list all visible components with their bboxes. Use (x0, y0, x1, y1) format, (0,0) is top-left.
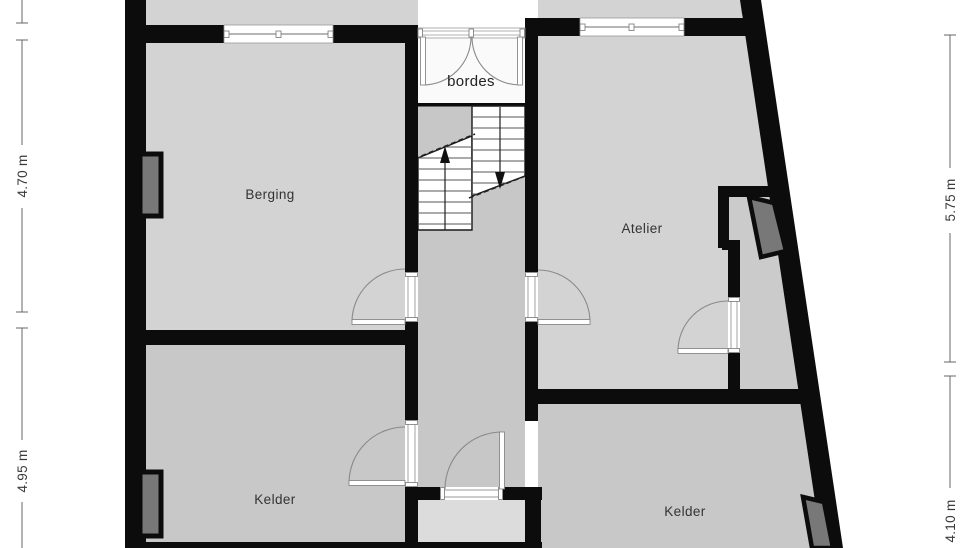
wall-hall-right-mid (525, 322, 538, 421)
wall-left-outer (125, 0, 146, 548)
dimension-label-right-top: 5.75 m (943, 178, 958, 221)
outside-strip-right (538, 0, 742, 18)
wall-hall-right-upper (525, 105, 538, 272)
dimension-label-right-bottom: 4.10 m (943, 499, 958, 542)
room-label-bordes: bordes (447, 73, 495, 90)
room-label-berging: Berging (245, 187, 294, 202)
radiator-berging (140, 154, 161, 216)
wall-small-room-top-b (503, 487, 542, 500)
wall-chimney-notch-side (718, 186, 729, 248)
wall-top-left-a (146, 25, 224, 43)
outside-strip-left (146, 0, 418, 25)
wall-small-room-top-a (405, 487, 440, 500)
radiator-kelder-left (140, 472, 161, 536)
wall-hall-left-upper (405, 105, 418, 272)
room-label-kelder-left: Kelder (254, 492, 296, 507)
room-kelder-right-floor (538, 404, 823, 548)
room-label-atelier: Atelier (621, 221, 662, 236)
wall-bordes-left (405, 25, 418, 105)
wall-closet-b (728, 353, 740, 404)
dimension-label-left-bottom: 4.95 m (15, 449, 30, 492)
window-atelier (580, 18, 684, 36)
wall-bordes-right (525, 18, 538, 105)
dimension-label-left-top: 4.70 m (15, 154, 30, 197)
wall-chimney-notch-stub (722, 240, 740, 250)
wall-top-right-a (538, 18, 580, 36)
wall-berging-kelder (146, 330, 405, 345)
window-bordes (418, 28, 525, 38)
room-kelder-left-floor (146, 345, 405, 548)
wall-atelier-bottom (538, 389, 805, 404)
room-label-kelder-right: Kelder (664, 504, 706, 519)
window-berging (224, 25, 333, 43)
small-room-floor (418, 500, 527, 548)
wall-hall-left-mid (405, 322, 418, 420)
wall-bottom-cut (125, 542, 542, 548)
floorplan-page: Berging Atelier Kelder Kelder bordes 4.7… (0, 0, 972, 548)
floorplan-canvas: Berging Atelier Kelder Kelder bordes 4.7… (0, 0, 972, 548)
wall-closet-a (728, 247, 740, 297)
